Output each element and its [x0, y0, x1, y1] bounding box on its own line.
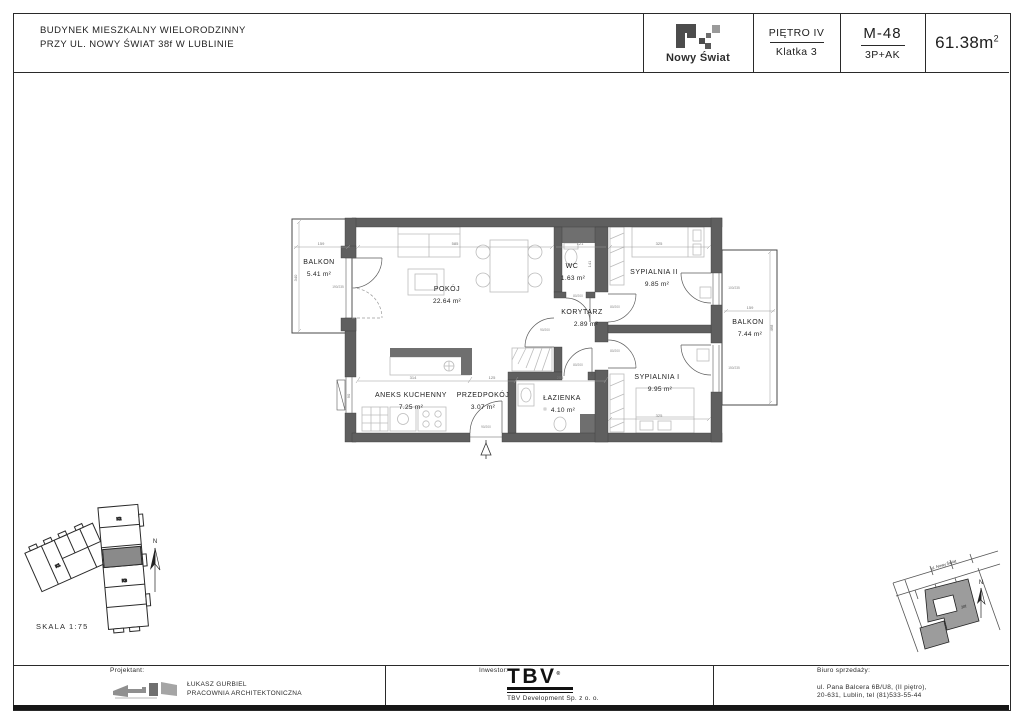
dim-text: 325 [656, 413, 663, 418]
room-label: KORYTARZ [561, 309, 603, 316]
staircase-label: Klatka 3 [776, 46, 817, 58]
dim-text: 121 [577, 241, 584, 246]
dim-text: 159 [747, 305, 754, 310]
north-label: N [979, 580, 983, 586]
room-label: SYPIALNIA II [630, 269, 678, 276]
project-title: BUDYNEK MIESZKALNY WIELORODZINNY PRZY UL… [40, 24, 246, 52]
dim-text: 325 [656, 241, 663, 246]
dim-text: 125 [489, 375, 496, 380]
room-area: 3.07 m² [471, 404, 496, 411]
location-map: ul. Nowy Świat 38f N [880, 535, 1020, 660]
biuro-line1: ul. Pana Balcera 6B/U8, (II piętro), [817, 684, 927, 692]
tbv-logo-line2 [507, 692, 573, 693]
room-label: BALKON [732, 319, 763, 326]
projektant-logo [113, 678, 177, 700]
room-label: WC [566, 263, 579, 270]
room-label: SYPIALNIA I [634, 374, 679, 381]
dimension-texts: 159 585 121 325 340 314 125 255 325 159 … [293, 241, 774, 429]
map-building [920, 579, 979, 649]
door-dim: 80/200 [573, 294, 583, 298]
tbv-logo: TBV® [507, 665, 573, 693]
window-dim: 100/235 [728, 286, 740, 290]
door-dim: 90/200 [481, 425, 491, 429]
inwestor-sub: TBV Development Sp. z o. o. [507, 695, 599, 703]
dim-text: 314 [410, 375, 417, 380]
unit-cell-divider [861, 45, 905, 46]
dimension-lines [294, 220, 775, 421]
room-labels: POKÓJ 22.64 m² ANEKS KUCHENNY 7.25 m² PR… [303, 259, 763, 414]
floor-cell-divider [770, 42, 824, 43]
dim-text: 159 [318, 241, 325, 246]
floor-cell: PIĘTRO IV Klatka 3 [753, 13, 840, 72]
window-dim: 150/235 [728, 366, 740, 370]
door-dim: 80/200 [573, 363, 583, 367]
header-divider [13, 72, 1009, 73]
door-dim: 80/200 [610, 349, 620, 353]
room-label: PRZEDPOKÓJ [457, 390, 509, 399]
nowy-swiat-logo-icon [672, 22, 724, 50]
room-area: 9.85 m² [645, 281, 670, 288]
dim-text: 468 [769, 324, 774, 331]
project-title-line2: PRZY UL. NOWY ŚWIAT 38f W LUBLINIE [40, 38, 246, 52]
floor-label: PIĘTRO IV [769, 27, 825, 39]
door-dim: 90/200 [540, 328, 550, 332]
dim-text: 90 [346, 393, 351, 398]
site-north-arrow: N [150, 539, 160, 592]
inwestor-label: Inwestor: [479, 667, 508, 674]
unit-number: M-48 [863, 25, 901, 42]
floor-plan-sheet: BUDYNEK MIESZKALNY WIELORODZINNY PRZY UL… [0, 0, 1024, 724]
brand-logo-cell: Nowy Świat [643, 13, 753, 72]
total-area: 61.38m2 [935, 33, 999, 53]
footer-sep-1 [385, 665, 386, 709]
area-cell: 61.38m2 [925, 13, 1009, 72]
tbv-reg-mark: ® [557, 671, 561, 677]
highlighted-unit [103, 546, 142, 567]
biuro-label: Biuro sprzedaży: [817, 667, 870, 674]
site-wing-a: K1 [23, 520, 109, 592]
projektant-sub: PRACOWNIA ARCHITEKTONICZNA [187, 690, 302, 698]
room-area: 9.95 m² [648, 386, 673, 393]
room-area: 22.64 m² [433, 298, 462, 305]
room-area: 5.41 m² [307, 271, 332, 278]
total-area-value: 61.38m [935, 33, 994, 52]
scale-label: SKALA 1:75 [36, 622, 88, 631]
floor-plan-drawing: POKÓJ 22.64 m² ANEKS KUCHENNY 7.25 m² PR… [270, 185, 800, 475]
unit-cell: M-48 3P+AK [840, 13, 925, 72]
room-area: 7.44 m² [738, 331, 763, 338]
map-north-arrow: N [977, 580, 985, 618]
door-dim: 190/235 [332, 285, 344, 289]
projektant-label: Projektant: [110, 667, 144, 674]
dim-text: 255 [557, 375, 564, 380]
dim-text: 141 [587, 260, 592, 267]
north-label: N [153, 539, 157, 545]
project-title-line1: BUDYNEK MIESZKALNY WIELORODZINNY [40, 24, 246, 38]
dim-text: 340 [293, 274, 298, 281]
footer-sep-2 [713, 665, 714, 709]
sheet-bottom-bar [13, 705, 1009, 710]
room-area: 2.89 m² [574, 321, 599, 328]
room-label: ŁAZIENKA [543, 395, 581, 402]
projektant-name: ŁUKASZ GURBIEL [187, 681, 247, 689]
room-label: BALKON [303, 259, 334, 266]
door-dim: 80/200 [610, 305, 620, 309]
room-area: 1.63 m² [561, 275, 586, 282]
room-area: 7.25 m² [399, 404, 424, 411]
room-label: ANEKS KUCHENNY [375, 392, 447, 399]
total-area-sup: 2 [994, 33, 999, 43]
brand-logo-text: Nowy Świat [666, 52, 730, 64]
biuro-line2: 20-631, Lublin, tel (81)533-55-44 [817, 692, 922, 700]
entrance-marker [481, 440, 491, 459]
unit-type: 3P+AK [865, 49, 900, 61]
room-label: POKÓJ [434, 284, 460, 293]
room-area: 4.10 m² [551, 407, 576, 414]
site-wing-b: K2 K3 [98, 504, 153, 633]
tbv-logo-text: TBV [507, 665, 557, 688]
dim-text: 585 [452, 241, 459, 246]
